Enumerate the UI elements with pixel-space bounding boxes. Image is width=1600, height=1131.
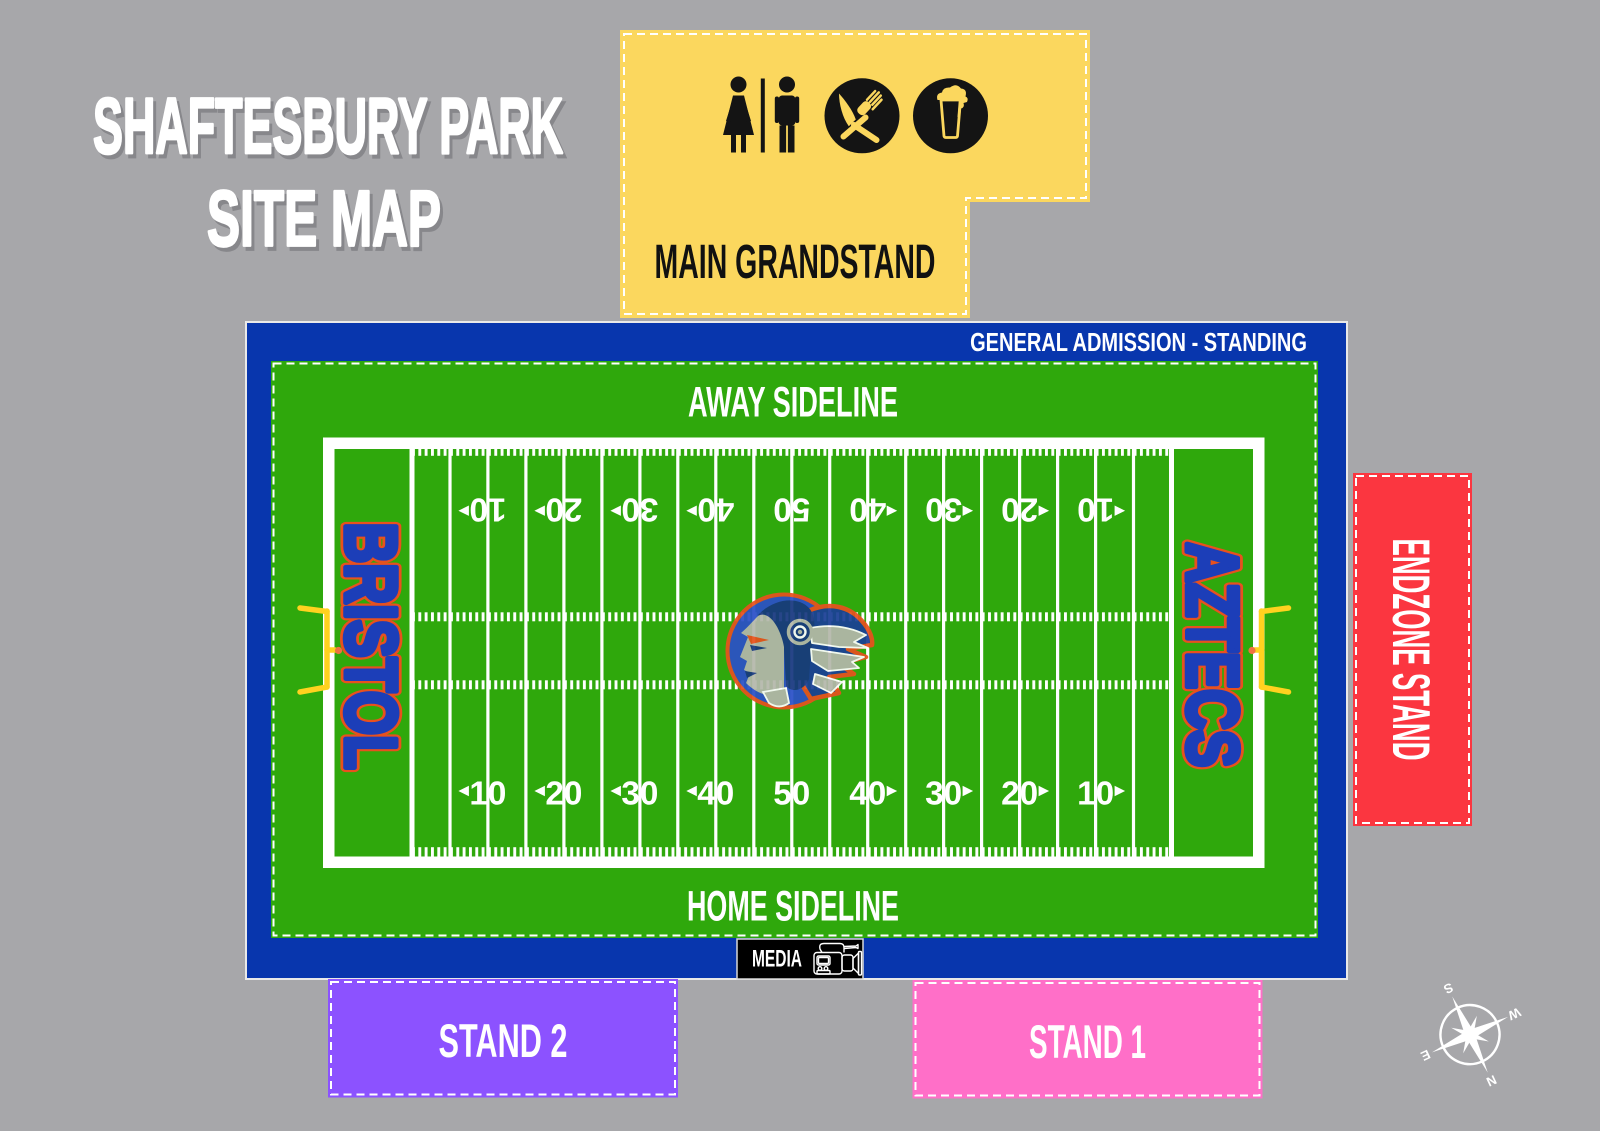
svg-text:BRISTOL: BRISTOL — [330, 523, 411, 770]
svg-text:30: 30 — [925, 775, 962, 812]
svg-text:STAND 1: STAND 1 — [1029, 1017, 1146, 1069]
svg-text:50: 50 — [773, 491, 810, 528]
svg-text:10: 10 — [469, 775, 506, 812]
svg-text:20: 20 — [545, 491, 582, 528]
svg-text:20: 20 — [545, 775, 582, 812]
svg-text:40: 40 — [697, 775, 734, 812]
svg-text:MAIN GRANDSTAND: MAIN GRANDSTAND — [655, 235, 936, 289]
svg-text:ENDZONE STAND: ENDZONE STAND — [1382, 539, 1442, 761]
svg-text:AZTECS: AZTECS — [1172, 542, 1252, 767]
svg-text:STAND 2: STAND 2 — [438, 1015, 567, 1067]
svg-text:40: 40 — [849, 775, 886, 812]
svg-text:30: 30 — [925, 491, 962, 528]
svg-text:HOME SIDELINE: HOME SIDELINE — [687, 882, 899, 930]
svg-text:40: 40 — [697, 491, 734, 528]
svg-text:50: 50 — [773, 775, 810, 812]
svg-text:SHAFTESBURY PARK: SHAFTESBURY PARK — [93, 82, 563, 171]
svg-text:20: 20 — [1001, 775, 1038, 812]
svg-text:MEDIA: MEDIA — [752, 946, 802, 972]
svg-text:10: 10 — [1077, 775, 1114, 812]
svg-text:AWAY SIDELINE: AWAY SIDELINE — [688, 378, 898, 426]
svg-text:30: 30 — [621, 491, 658, 528]
svg-text:40: 40 — [849, 491, 886, 528]
svg-text:10: 10 — [469, 491, 506, 528]
svg-text:SITE MAP: SITE MAP — [207, 174, 441, 263]
svg-text:30: 30 — [621, 775, 658, 812]
svg-text:20: 20 — [1001, 491, 1038, 528]
svg-text:10: 10 — [1077, 491, 1114, 528]
svg-text:GENERAL ADMISSION - STANDING: GENERAL ADMISSION - STANDING — [970, 327, 1307, 356]
